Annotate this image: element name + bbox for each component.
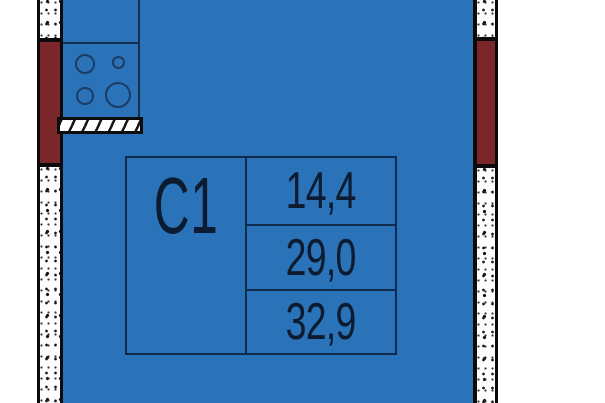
wall-left-concrete-segment-bottom	[40, 167, 60, 403]
stove-burner-icon	[76, 87, 94, 105]
stove-burner-icon	[105, 82, 131, 108]
area-value: 32,9	[286, 296, 356, 348]
wall-right-red-segment	[477, 37, 495, 168]
stove-burner-icon	[75, 54, 95, 74]
wall-left	[37, 0, 63, 403]
area-value: 29,0	[286, 232, 356, 284]
counter-hatch-icon	[57, 117, 143, 134]
area-cell: 14,4	[247, 158, 395, 226]
area-value: 14,4	[286, 165, 356, 217]
wall-left-concrete-segment-top	[40, 0, 60, 38]
unit-info-table[interactable]: C1 14,4 29,0 32,9	[125, 156, 397, 355]
kitchen-partition-line-horizontal	[63, 42, 140, 44]
stove-burner-icon	[112, 56, 125, 69]
wall-right-concrete-segment-top	[477, 0, 495, 37]
unit-label-cell: C1	[127, 158, 247, 353]
wall-left-red-segment	[40, 38, 60, 167]
kitchen-partition-line-vertical	[138, 0, 140, 119]
wall-right-concrete-segment-bottom	[477, 168, 495, 403]
floor-plan: C1 14,4 29,0 32,9	[0, 0, 605, 403]
area-cell: 32,9	[247, 291, 395, 353]
wall-right	[473, 0, 498, 403]
unit-label: C1	[154, 166, 219, 246]
area-cell: 29,0	[247, 226, 395, 291]
